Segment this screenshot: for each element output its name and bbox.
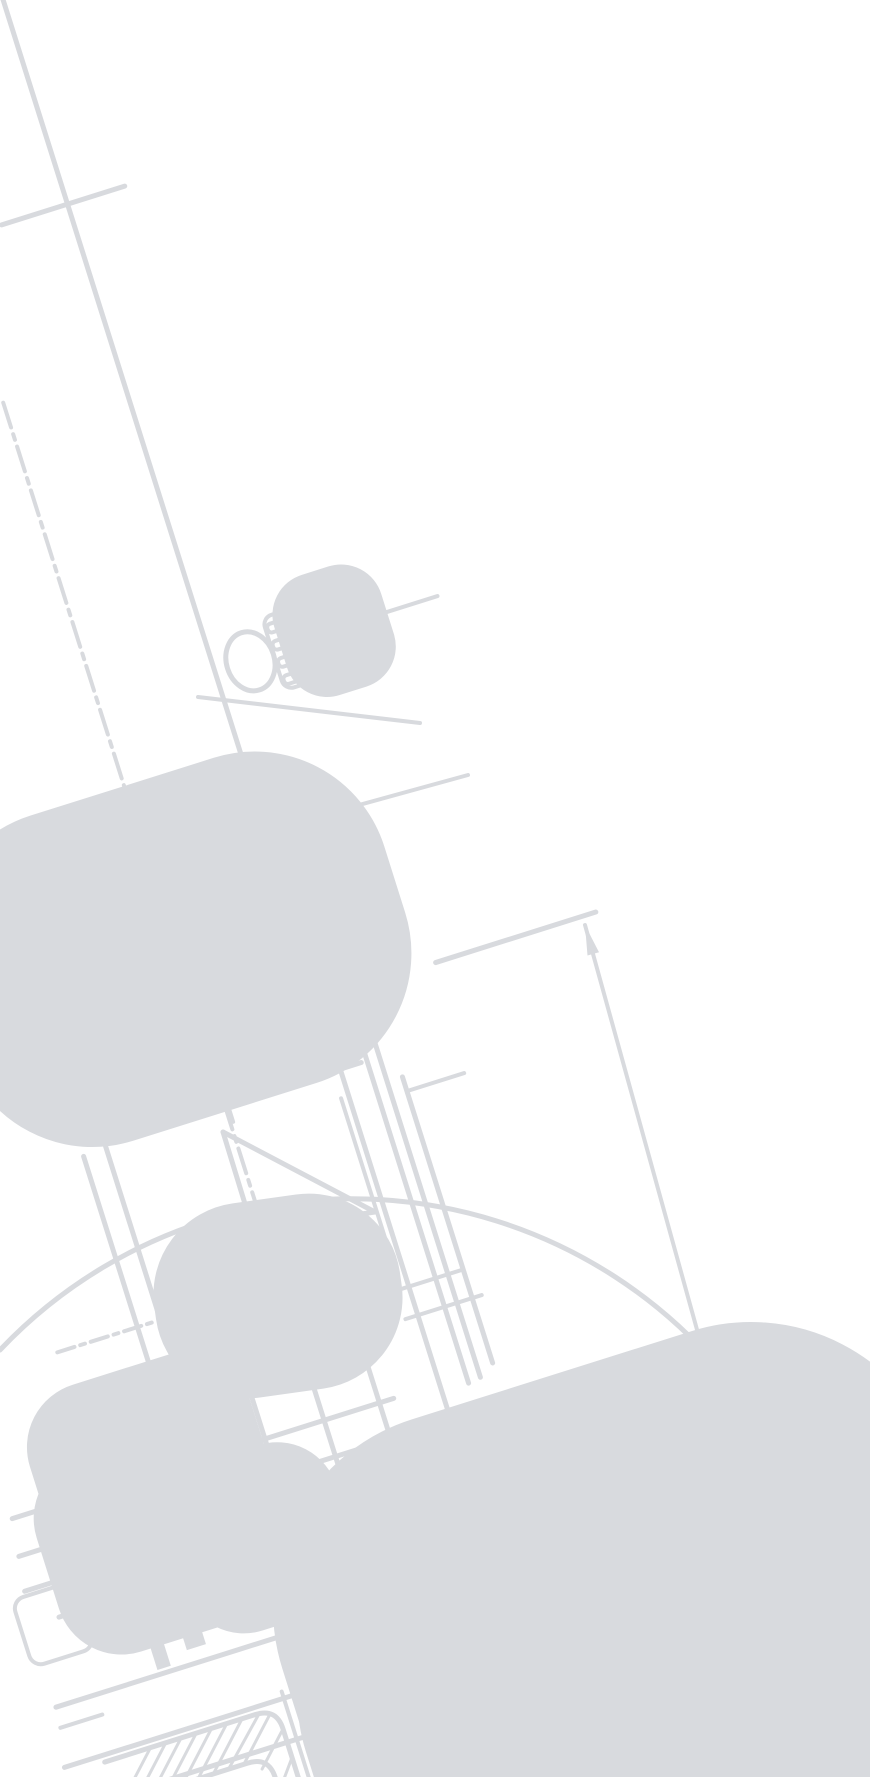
- h-stub-right: [407, 1073, 464, 1091]
- dim3-arrowhead-up: [585, 925, 599, 956]
- knurled-part: [212, 1252, 352, 1341]
- h-stub-bottom-left: [60, 1715, 102, 1728]
- bottom-right-part: [420, 1488, 867, 1777]
- top-fitting: [216, 589, 374, 705]
- fitting-head-outer: [297, 589, 371, 673]
- blueprint-page: [0, 0, 870, 1777]
- h-dim-ext-top: [436, 912, 596, 963]
- blueprint-drawing: [0, 0, 870, 1777]
- mid-cap-component: [46, 862, 300, 1036]
- fitting-end-ellipse: [219, 625, 283, 697]
- cap-outer: [46, 862, 300, 1036]
- shell-inner: [447, 1590, 815, 1777]
